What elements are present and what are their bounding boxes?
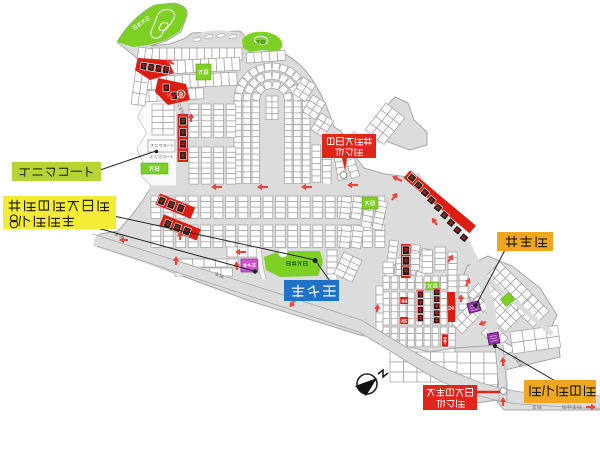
svg-text:44: 44 [401, 299, 408, 305]
svg-text:24: 24 [448, 306, 455, 312]
svg-text:45: 45 [401, 319, 407, 325]
svg-text:B: B [179, 93, 184, 99]
